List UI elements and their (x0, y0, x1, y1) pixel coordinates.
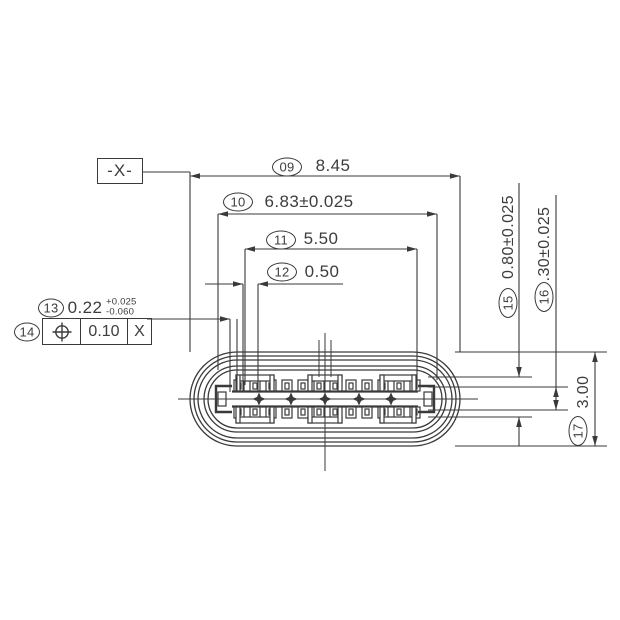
dim-value-16: .30±0.025 (536, 207, 554, 282)
dim-value-12: 0.50 (305, 262, 340, 282)
tolerance-minus: -0.060 (106, 308, 137, 318)
dim-value-13: 0.22 (68, 298, 103, 318)
fcf-tolerance-value: 0.10 (81, 319, 128, 344)
fcf-datum-ref: X (128, 319, 151, 344)
feature-control-frame: 0.10 X (42, 318, 152, 345)
engineering-drawing: -X- 09 8.45 10 6.83±0.025 11 5.50 12 0.5… (0, 0, 620, 620)
position-tolerance-icon (43, 319, 81, 344)
dim-balloon-15: 15 (499, 288, 518, 318)
dim-balloon-10: 10 (223, 193, 253, 212)
datum-flag: -X- (97, 158, 143, 184)
dim-balloon-16: 16 (535, 282, 554, 312)
dim-value-09: 8.45 (316, 156, 351, 176)
dim-balloon-17: 17 (569, 416, 588, 446)
dim-value-11: 5.50 (304, 229, 339, 249)
dim-balloon-09: 09 (272, 158, 302, 177)
dim-value-15: 0.80±0.025 (500, 195, 518, 279)
dim-value-17: 3.00 (575, 376, 593, 409)
dim-balloon-13: 13 (38, 299, 64, 318)
dim-value-10: 6.83±0.025 (265, 192, 354, 212)
dim-balloon-14: 14 (14, 323, 40, 342)
dim-balloon-12: 12 (267, 263, 297, 282)
dim-tolerance-stack-13: +0.025 -0.060 (106, 298, 137, 319)
dim-balloon-11: 11 (266, 231, 296, 250)
